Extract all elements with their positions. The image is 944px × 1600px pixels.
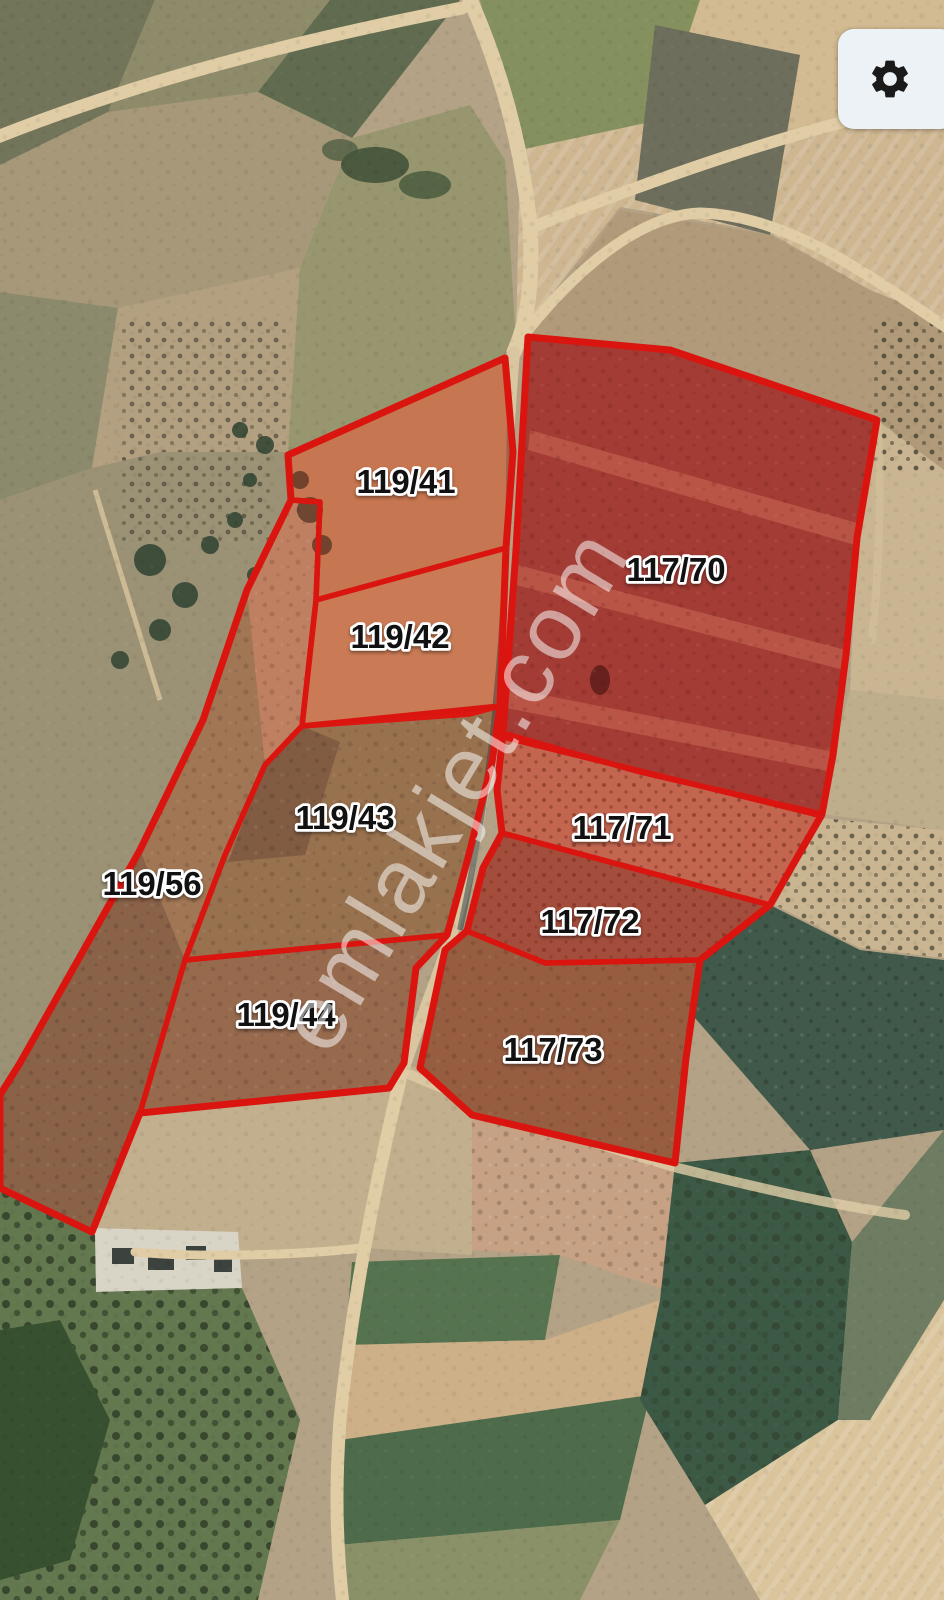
gear-icon bbox=[867, 56, 913, 102]
settings-button[interactable] bbox=[838, 29, 944, 129]
map-screen: 119/41 119/42 119/43 119/56 119/44 117/7… bbox=[0, 0, 944, 1600]
parcel-label-117-71: 117/71 bbox=[572, 809, 671, 846]
parcel-label-119-56: 119/56 bbox=[102, 865, 201, 902]
parcel-label-119-41: 119/41 bbox=[356, 463, 455, 500]
parcel-label-119-42: 119/42 bbox=[350, 618, 449, 655]
parcel-label-117-72: 117/72 bbox=[540, 903, 639, 940]
parcel-label-117-73: 117/73 bbox=[503, 1031, 602, 1068]
satellite-map-canvas[interactable]: 119/41 119/42 119/43 119/56 119/44 117/7… bbox=[0, 0, 944, 1600]
